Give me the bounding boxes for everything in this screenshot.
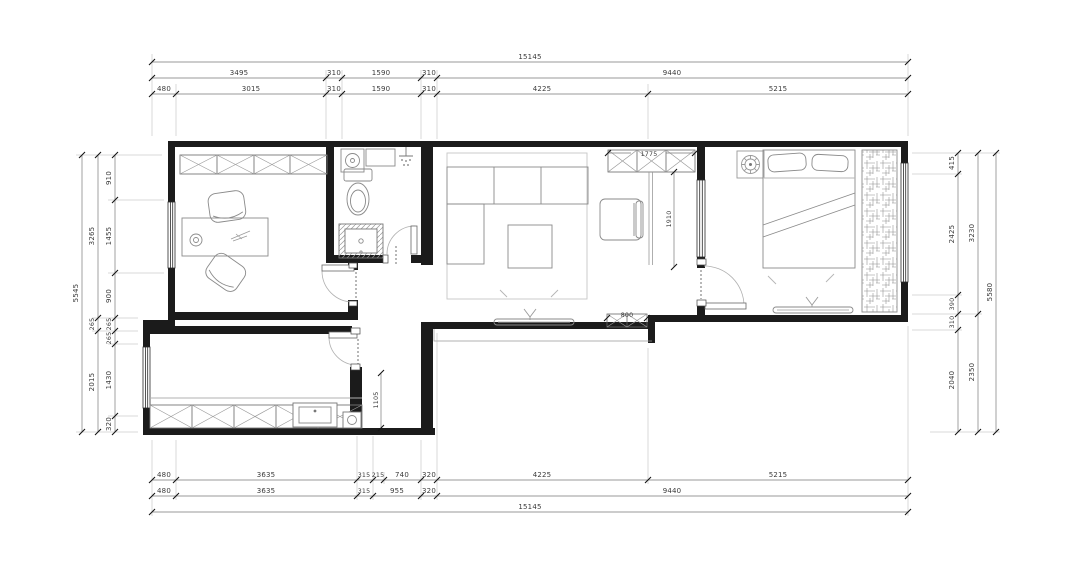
wall-hall-bedroom-stub-top: [697, 147, 705, 180]
vanity-sink: [339, 224, 383, 258]
hall-screen: [649, 172, 653, 265]
study-door: [322, 263, 357, 306]
dim-label: 265: [106, 318, 113, 331]
tv-console-bedroom: [768, 274, 853, 313]
kitchen-window: [143, 347, 150, 408]
desk-cup: [190, 234, 202, 246]
walls: [143, 141, 908, 435]
living-room: [447, 150, 695, 327]
dim-label: 9440: [663, 487, 682, 495]
dim-label: 3015: [242, 85, 261, 93]
study-window: [168, 202, 175, 268]
dimension-ticks: [79, 59, 999, 515]
dim-label: 5580: [986, 283, 994, 302]
dim-label: 1590: [372, 69, 391, 77]
dim-label: 480: [157, 487, 171, 495]
doors: [322, 226, 746, 370]
desk-pen: [231, 231, 250, 241]
wall-left-upper: [168, 141, 175, 202]
dim-label: 2040: [948, 371, 956, 390]
tv-icon: [806, 297, 818, 307]
shower-icon: [399, 147, 413, 166]
dim-label: 310: [422, 69, 436, 77]
dim-label: 955: [390, 487, 404, 495]
dim-label: 310: [949, 316, 956, 329]
dim-label: 800: [621, 312, 634, 319]
wall-bath-right: [421, 147, 433, 265]
dim-label: 2015: [88, 373, 96, 392]
dim-label: 310: [327, 85, 341, 93]
dim-label: 5215: [769, 471, 788, 479]
bedroom: [737, 150, 897, 313]
dim-label: 315: [358, 488, 371, 495]
study-chair-south: [203, 250, 249, 294]
dim-label: 3230: [968, 224, 976, 243]
dim-label: 315: [358, 472, 371, 479]
dim-label: 3265: [88, 227, 96, 246]
dim-label: 2425: [948, 225, 956, 244]
floor-plan-drawing: 15145 3495 310 1590 310 9440 480 3015 31…: [0, 0, 1074, 576]
study-wardrobe: [180, 155, 327, 174]
bath-cabinet: [366, 149, 395, 166]
dim-label: 4225: [533, 471, 552, 479]
windows: [143, 163, 908, 408]
dim-label: 320: [105, 417, 113, 431]
wall-bedroom-bottom: [650, 315, 908, 322]
dim-label: 480: [157, 85, 171, 93]
facade-step-line: [434, 329, 652, 341]
kitchen-sink: [293, 403, 337, 427]
dim-label: 415: [948, 156, 956, 170]
wall-living-bottom: [421, 322, 654, 329]
dim-label: 1455: [105, 227, 113, 246]
dim-label: 320: [422, 487, 436, 495]
dim-label: 1105: [373, 392, 380, 409]
study-room: [180, 155, 327, 295]
dim-label: 1590: [372, 85, 391, 93]
extension-lines: [76, 54, 1000, 516]
floor-plan-page: 15145 3495 310 1590 310 9440 480 3015 31…: [0, 0, 1074, 576]
tv-icon: [524, 309, 536, 320]
dim-label: 740: [395, 471, 409, 479]
bedroom-wardrobe-band: [862, 150, 897, 312]
dim-label: 310: [422, 85, 436, 93]
dim-label: 2350: [968, 363, 976, 382]
armchair: [600, 199, 643, 240]
bedroom-window: [901, 163, 908, 282]
coffee-table: [508, 225, 552, 268]
dim-label: 3635: [257, 471, 276, 479]
dim-label: 900: [105, 289, 113, 303]
wall-study-bottom: [168, 312, 350, 320]
wall-bath-bottom-right: [411, 255, 433, 263]
dim-label: 1775: [641, 151, 658, 158]
dimension-lines: [82, 62, 996, 512]
pillow: [812, 154, 849, 172]
dim-label: 9440: [663, 69, 682, 77]
dim-label: 3495: [230, 69, 249, 77]
bed: [763, 150, 855, 268]
dim-label: 15145: [518, 53, 541, 61]
dimension-labels: 15145 3495 310 1590 310 9440 480 3015 31…: [72, 53, 994, 511]
kitchen-hob: [343, 412, 361, 428]
dim-label: 480: [157, 471, 171, 479]
dim-label: 1910: [666, 211, 673, 228]
ceiling-lamp-icon: [737, 151, 764, 178]
wall-top: [168, 141, 908, 147]
dim-label: 310: [327, 69, 341, 77]
kitchen-door: [329, 328, 360, 370]
dim-label: 320: [422, 471, 436, 479]
dim-label: 5215: [769, 85, 788, 93]
dim-label: 910: [105, 171, 113, 185]
bathroom: [339, 147, 413, 258]
dim-label: 5545: [72, 284, 80, 303]
wall-kitchen-bottom: [143, 428, 435, 435]
rug: [447, 153, 587, 299]
pillow: [767, 153, 806, 173]
dim-label: 15145: [518, 503, 541, 511]
dim-label: 390: [949, 298, 956, 311]
toilet: [344, 169, 372, 215]
dim-label: 265: [106, 332, 113, 345]
dim-label: 3635: [257, 487, 276, 495]
dim-label: 4225: [533, 85, 552, 93]
wall-kitchen-right-block: [421, 329, 433, 435]
desk: [182, 218, 268, 256]
wall-right-upper: [901, 141, 908, 163]
wall-kitchen-top: [143, 326, 352, 334]
kitchen: [150, 398, 362, 428]
sofa: [447, 167, 588, 264]
tv-console-living: [494, 290, 574, 325]
dim-label: 265: [89, 318, 96, 331]
hall-glazing: [697, 180, 705, 257]
dim-label: 1430: [105, 371, 113, 390]
dim-label: 215: [372, 472, 385, 479]
